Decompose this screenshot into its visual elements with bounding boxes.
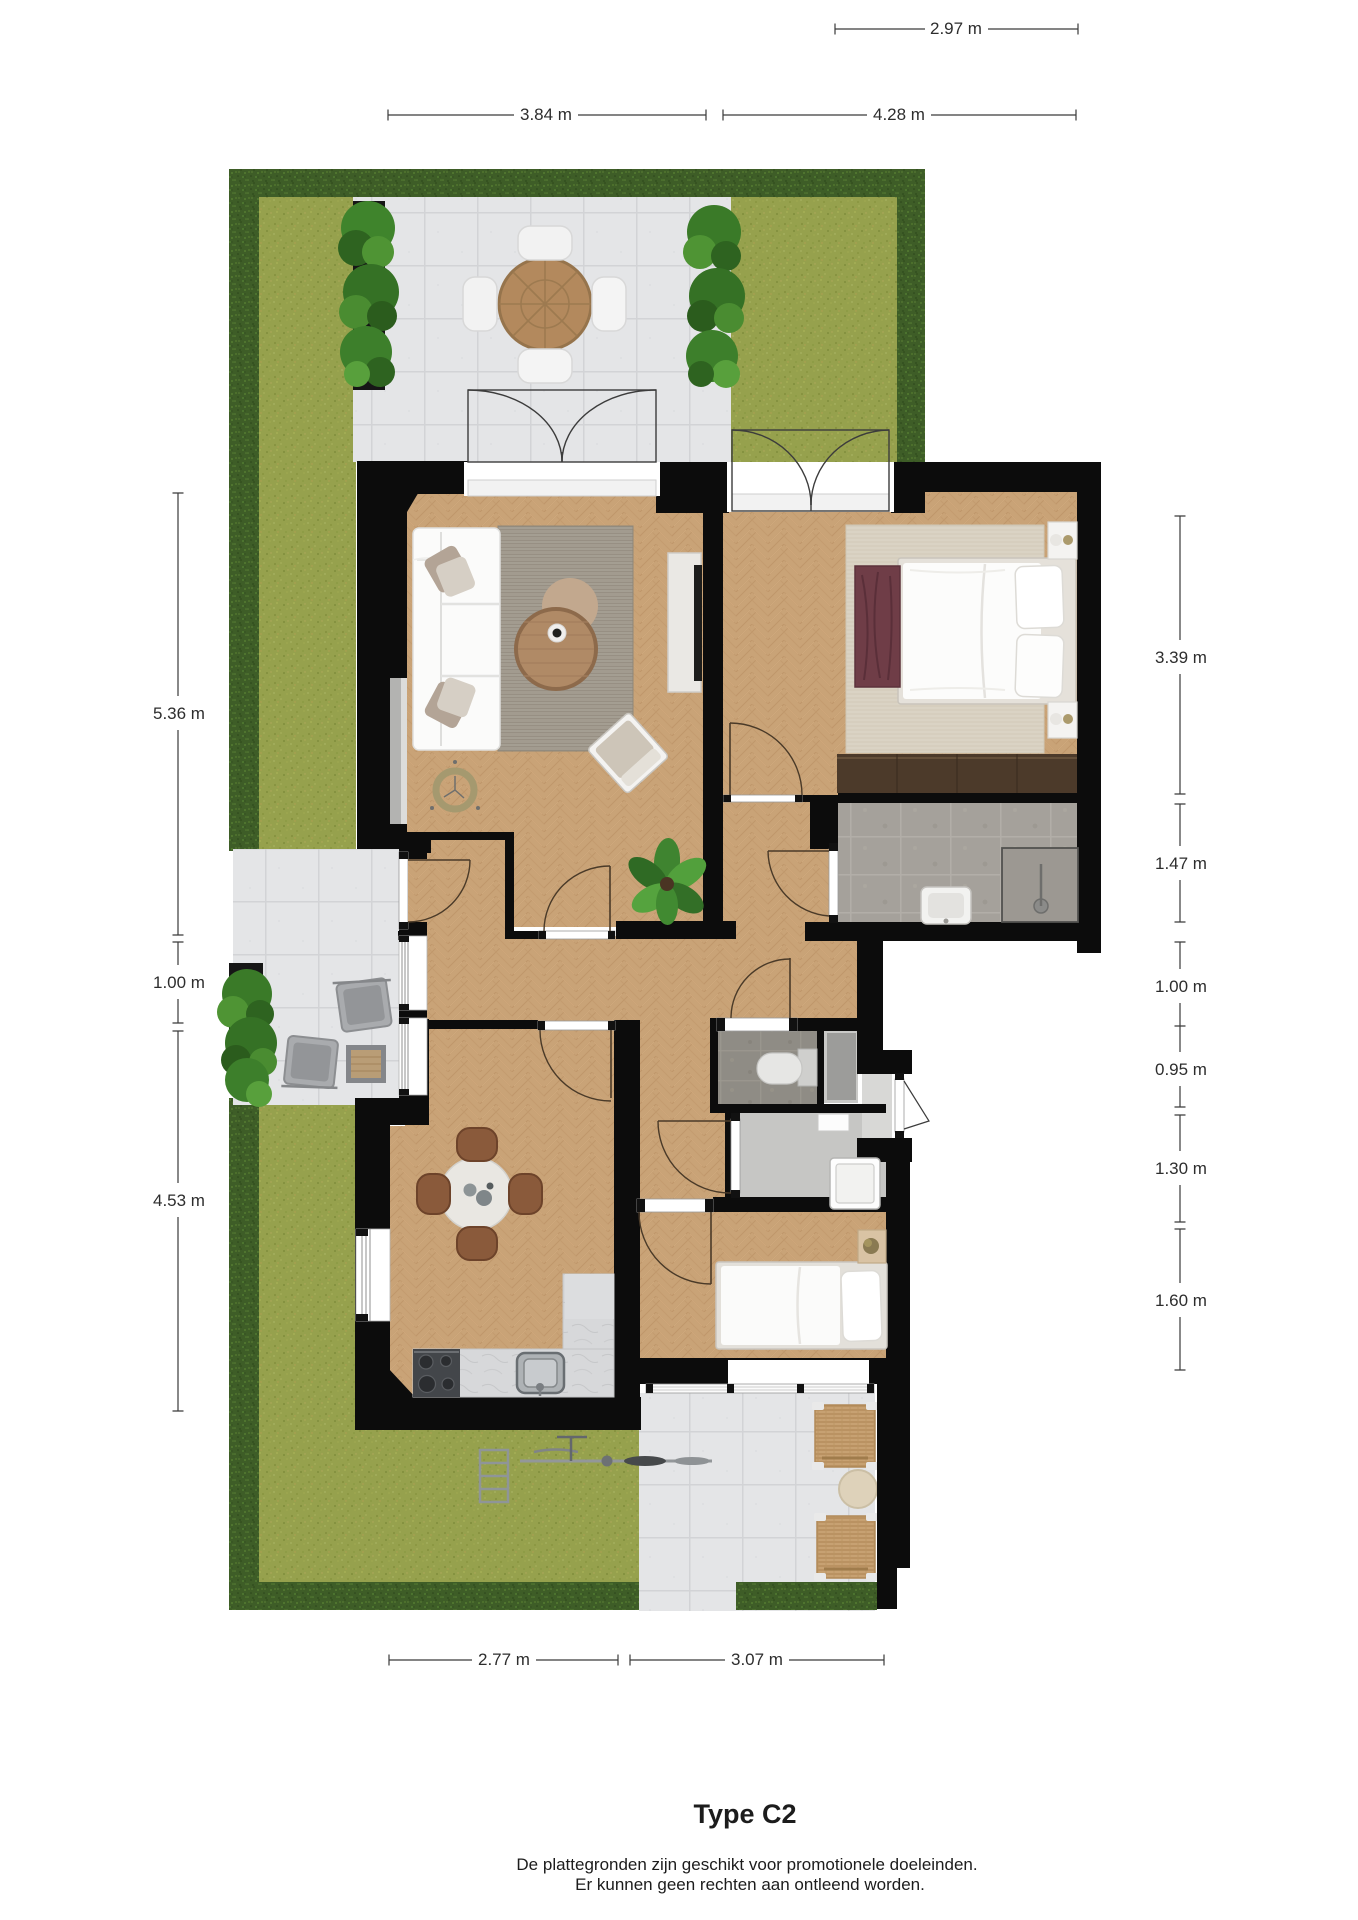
svg-text:3.39 m: 3.39 m [1155, 648, 1207, 667]
svg-text:1.47 m: 1.47 m [1155, 854, 1207, 873]
svg-text:4.28 m: 4.28 m [873, 105, 925, 124]
svg-text:1.00 m: 1.00 m [1155, 977, 1207, 996]
svg-text:1.00 m: 1.00 m [153, 973, 205, 992]
svg-text:4.53 m: 4.53 m [153, 1191, 205, 1210]
svg-text:De plattegronden zijn geschikt: De plattegronden zijn geschikt voor prom… [516, 1855, 977, 1874]
svg-text:5.36 m: 5.36 m [153, 704, 205, 723]
svg-text:3.07 m: 3.07 m [731, 1650, 783, 1669]
svg-text:0.95 m: 0.95 m [1155, 1060, 1207, 1079]
svg-text:2.77 m: 2.77 m [478, 1650, 530, 1669]
svg-text:2.97 m: 2.97 m [930, 19, 982, 38]
svg-text:Er kunnen geen rechten aan ont: Er kunnen geen rechten aan ontleend word… [575, 1875, 925, 1894]
svg-text:1.60 m: 1.60 m [1155, 1291, 1207, 1310]
svg-text:1.30 m: 1.30 m [1155, 1159, 1207, 1178]
svg-text:3.84 m: 3.84 m [520, 105, 572, 124]
svg-text:Type C2: Type C2 [693, 1799, 796, 1829]
